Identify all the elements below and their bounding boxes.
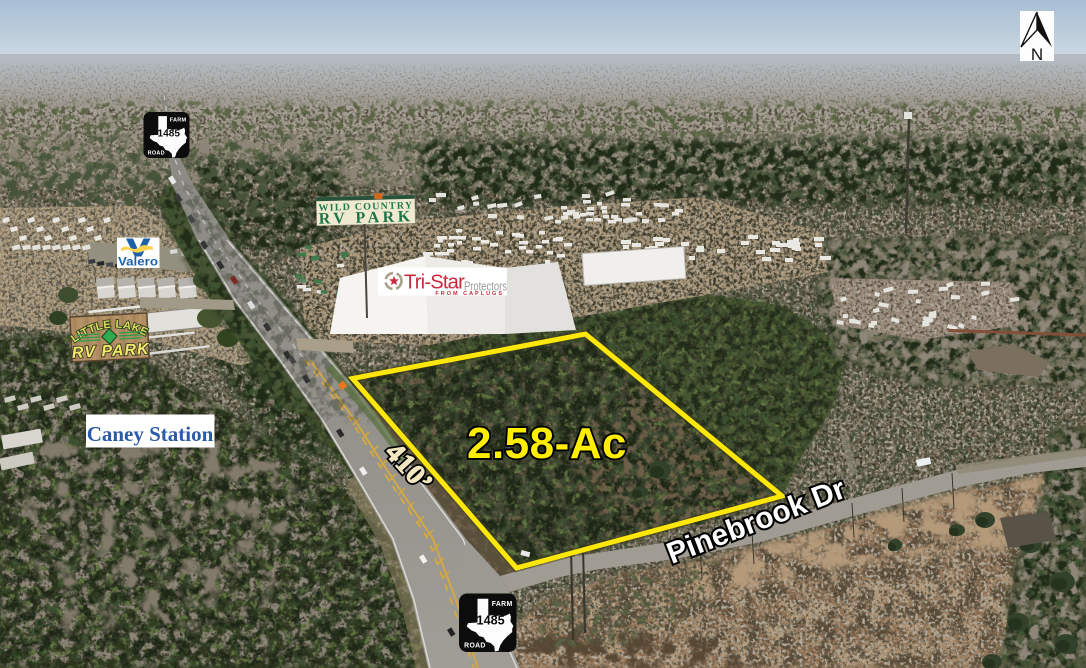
svg-text:ROAD: ROAD <box>464 642 485 649</box>
svg-text:1485: 1485 <box>477 612 505 627</box>
svg-text:2.58-Ac: 2.58-Ac <box>467 419 627 468</box>
svg-text:Caney Station: Caney Station <box>87 422 214 446</box>
svg-text:RV PARK: RV PARK <box>319 208 414 227</box>
svg-text:FARM: FARM <box>492 601 513 608</box>
svg-text:Valero: Valero <box>118 257 158 269</box>
svg-text:N: N <box>1031 45 1043 64</box>
svg-text:FARM: FARM <box>170 118 187 124</box>
svg-text:1485: 1485 <box>158 128 181 139</box>
svg-text:FROM CAPLUGS: FROM CAPLUGS <box>435 291 504 297</box>
svg-text:ROAD: ROAD <box>148 150 165 156</box>
